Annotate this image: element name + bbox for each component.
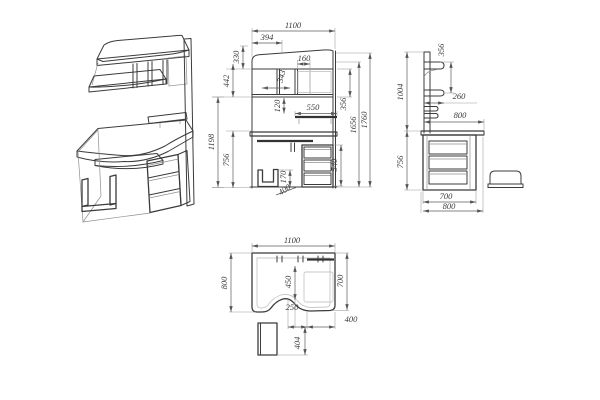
dim-top-overall-width: 1100: [284, 235, 301, 245]
dim-front-divider-spacing: 343: [274, 69, 287, 85]
dim-front-overall-height: 1760: [359, 111, 369, 129]
dim-side-overall-depth: 800: [443, 201, 457, 211]
desk-technical-drawing: 1198: [0, 0, 600, 400]
dim-side-shelf-depth: 260: [453, 91, 467, 101]
dim-front-hutch-height: 442: [221, 74, 231, 88]
dim-front-shelf-offset: 356: [338, 97, 348, 112]
drawing-sheet: 1198: [0, 0, 600, 400]
dim-front-top-section: 330: [231, 50, 241, 65]
dim-top-stand-depth: 404: [292, 336, 302, 350]
front-linework: [250, 50, 337, 188]
dim-front-cpu-holder-height: 170: [278, 170, 288, 184]
front-view: 1100 394 160 330 442 343 120 550 356 165…: [212, 20, 372, 197]
dim-front-tray-width: 550: [307, 102, 321, 112]
dim-side-shelf-section: 356: [436, 43, 446, 58]
side-extension-lines: [404, 52, 484, 213]
side-linework: [421, 52, 523, 190]
dim-iso-height: 1198: [206, 133, 216, 150]
dim-top-cutout-depth: 450: [283, 275, 293, 289]
dim-front-shelf-width: 394: [260, 32, 275, 42]
dim-side-desk-height: 756: [395, 155, 405, 169]
dim-side-desktop-depth: 800: [454, 110, 468, 120]
dim-front-shelf-gap: 120: [272, 99, 282, 113]
top-view: 1100 800 700 450 250 400 404: [219, 235, 358, 355]
dim-side-carcass-depth: 700: [440, 191, 454, 201]
dim-top-overall-depth: 800: [219, 276, 229, 290]
dim-side-hutch-height: 1004: [395, 83, 405, 101]
isometric-dimensions: 1198: [206, 97, 224, 188]
dim-front-desk-height: 756: [221, 153, 231, 167]
side-view: 356 1004 260 800 756 700 800: [395, 43, 523, 213]
dim-top-tray-offset: 400: [345, 314, 359, 324]
dim-front-overall-width: 1100: [285, 20, 302, 30]
dim-front-cubby-width: 160: [298, 53, 312, 63]
isometric-linework: [77, 35, 194, 222]
dim-front-drawer-unit-height: 540: [329, 158, 339, 172]
dim-top-right-depth: 700: [335, 274, 345, 288]
isometric-view: 1198: [77, 35, 224, 222]
dim-front-floor-to-shelf: 1656: [348, 116, 358, 134]
dim-top-cutout-width: 250: [286, 302, 300, 312]
